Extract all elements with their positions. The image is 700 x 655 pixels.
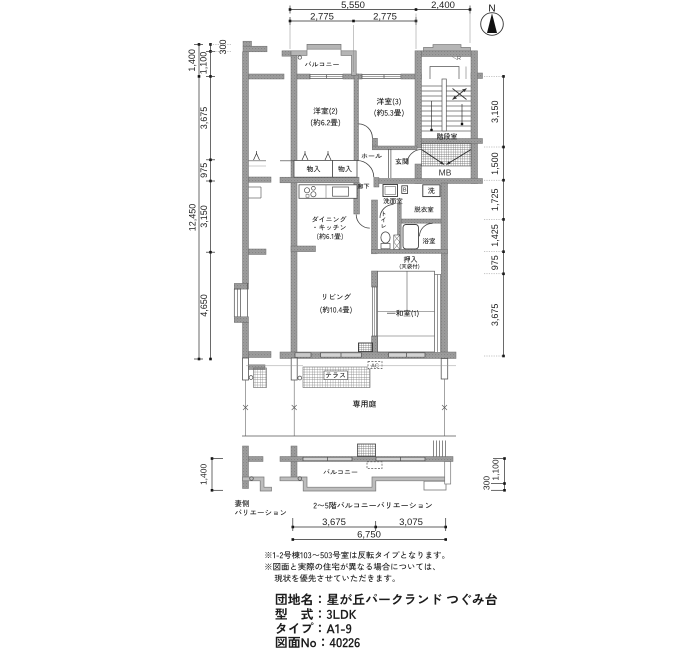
svg-text:300: 300 bbox=[218, 39, 228, 54]
svg-text:300: 300 bbox=[482, 476, 492, 490]
svg-text:AC: AC bbox=[371, 363, 379, 369]
svg-text:1,100: 1,100 bbox=[491, 459, 501, 481]
svg-text:2,775: 2,775 bbox=[373, 12, 397, 23]
svg-text:MB: MB bbox=[439, 167, 452, 177]
svg-text:3,150: 3,150 bbox=[199, 205, 209, 228]
svg-text:1,425: 1,425 bbox=[490, 224, 500, 247]
svg-text:3,150: 3,150 bbox=[490, 100, 500, 123]
svg-text:3,675: 3,675 bbox=[199, 107, 209, 130]
svg-text:N: N bbox=[488, 4, 495, 15]
svg-text:6,750: 6,750 bbox=[357, 530, 381, 541]
svg-text:1,100: 1,100 bbox=[199, 52, 209, 75]
svg-text:4,650: 4,650 bbox=[199, 294, 209, 317]
svg-text:3,075: 3,075 bbox=[399, 517, 423, 528]
svg-text:975: 975 bbox=[199, 163, 209, 178]
svg-text:1,725: 1,725 bbox=[490, 189, 500, 212]
svg-text:2,400: 2,400 bbox=[431, 0, 455, 11]
svg-text:975: 975 bbox=[490, 255, 500, 270]
svg-text:1,400: 1,400 bbox=[187, 49, 197, 72]
svg-text:5,550: 5,550 bbox=[341, 0, 365, 11]
svg-text:B: B bbox=[403, 188, 407, 194]
svg-text:1,400: 1,400 bbox=[199, 463, 209, 485]
svg-text:3,675: 3,675 bbox=[490, 304, 500, 327]
svg-text:R: R bbox=[457, 56, 461, 62]
svg-text:1,500: 1,500 bbox=[490, 152, 500, 175]
svg-text:3,675: 3,675 bbox=[322, 517, 346, 528]
svg-text:2,775: 2,775 bbox=[310, 12, 334, 23]
svg-text:12,450: 12,450 bbox=[188, 204, 198, 232]
